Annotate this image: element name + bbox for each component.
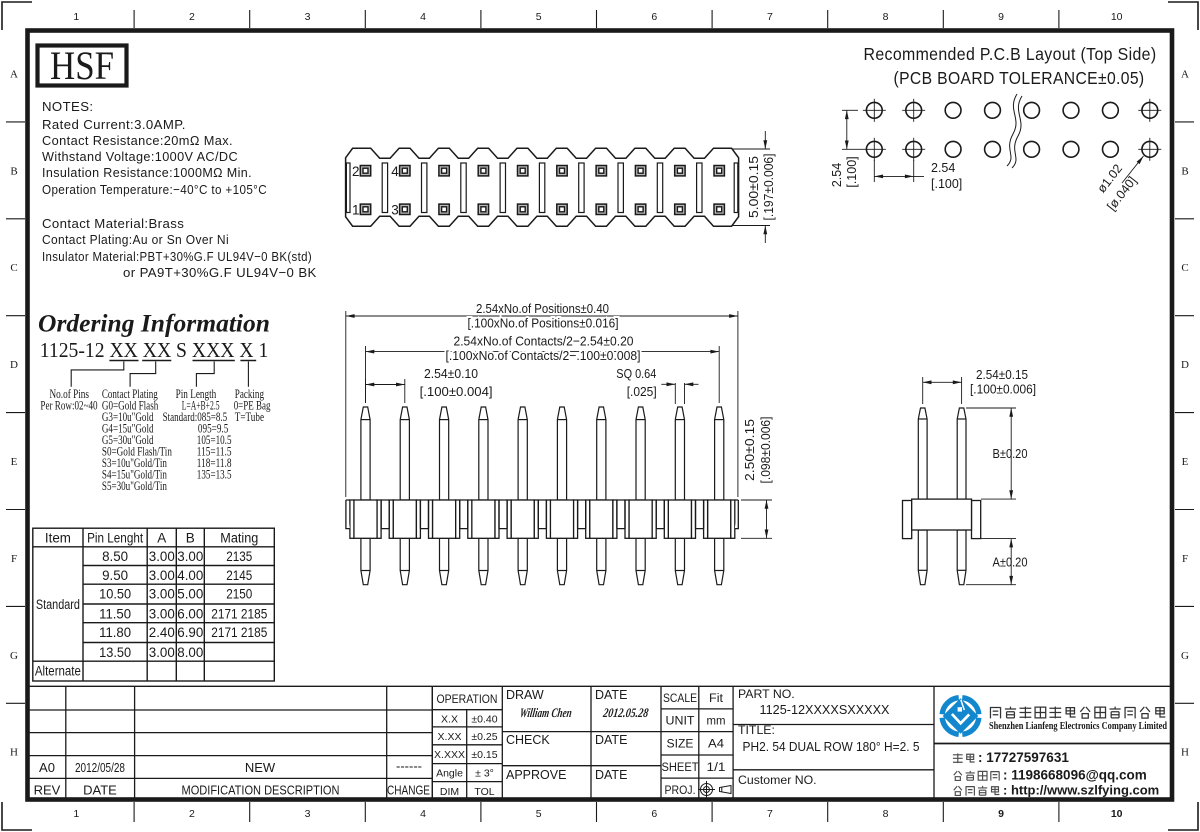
svg-text:A: A	[10, 68, 18, 80]
svg-text:X.XX: X.XX	[438, 731, 462, 743]
svg-text:2145: 2145	[226, 568, 252, 584]
svg-text:E: E	[11, 456, 18, 468]
svg-text:8: 8	[883, 11, 889, 23]
svg-text:PH2. 54 DUAL ROW 180° H=2.: PH2. 54 DUAL ROW 180° H=2. 5	[743, 739, 920, 754]
svg-text:7: 7	[767, 11, 773, 23]
svg-text:X.X: X.X	[441, 713, 458, 725]
svg-text:S5=30u"Gold/Tin: S5=30u"Gold/Tin	[102, 479, 167, 493]
svg-text:or PA9T+30%G.F UL94V−0 BK: or PA9T+30%G.F UL94V−0 BK	[123, 265, 317, 280]
svg-text:------: ------	[396, 759, 422, 774]
svg-text:3: 3	[391, 203, 399, 218]
svg-text:3.00: 3.00	[149, 587, 175, 603]
svg-text:11.50: 11.50	[99, 606, 131, 622]
svg-text:X.XXX: X.XXX	[434, 749, 465, 761]
svg-text:HSF: HSF	[50, 43, 114, 88]
svg-text:2: 2	[352, 164, 360, 179]
svg-text:(PCB BOARD TOLERANCE±0.05): (PCB BOARD TOLERANCE±0.05)	[894, 68, 1145, 88]
svg-text:2171 2185: 2171 2185	[211, 606, 267, 622]
svg-text:2.54: 2.54	[830, 163, 844, 187]
svg-text:2.54±0.15: 2.54±0.15	[976, 367, 1028, 382]
svg-text:2.54xNo.of Contacts/2−2.54±0.2: 2.54xNo.of Contacts/2−2.54±0.20	[454, 334, 634, 349]
svg-text:DIM: DIM	[440, 786, 459, 798]
svg-text:APPROVE: APPROVE	[506, 768, 566, 782]
svg-text:2.54: 2.54	[931, 161, 955, 175]
svg-text:2.40: 2.40	[149, 625, 175, 641]
svg-text:[.025]: [.025]	[627, 384, 657, 399]
svg-text:DRAW: DRAW	[506, 688, 544, 702]
svg-text:G: G	[10, 650, 18, 662]
svg-text:[.100±0.006]: [.100±0.006]	[970, 382, 1036, 397]
svg-text:: http://www.szlfying.com: : http://www.szlfying.com	[1003, 783, 1159, 798]
svg-text:[.100xNo.of Positions±0.016]: [.100xNo.of Positions±0.016]	[468, 316, 619, 331]
svg-text:5.00±0.15: 5.00±0.15	[747, 156, 761, 218]
svg-text:Contact Plating:Au or Sn Over: Contact Plating:Au or Sn Over Ni	[42, 232, 229, 247]
svg-text:2012.05.28: 2012.05.28	[602, 705, 650, 720]
svg-text:[.197±0.006]: [.197±0.006]	[762, 154, 776, 221]
svg-text:Recommended P.C.B Layout (Top: Recommended P.C.B Layout (Top Side)	[864, 44, 1157, 64]
svg-text:A4: A4	[708, 737, 724, 751]
svg-text:2.50±0.15: 2.50±0.15	[742, 419, 757, 481]
svg-text:9: 9	[998, 11, 1004, 23]
svg-text:OPERATION: OPERATION	[437, 692, 498, 706]
svg-text:H: H	[10, 747, 18, 759]
svg-text:135=13.5: 135=13.5	[197, 468, 232, 482]
svg-text:E: E	[1182, 456, 1189, 468]
svg-text:[.100±0.004]: [.100±0.004]	[420, 384, 493, 399]
svg-text:7: 7	[767, 808, 773, 820]
svg-text:Mating: Mating	[220, 530, 258, 546]
svg-text:Ordering Information: Ordering Information	[38, 309, 270, 338]
svg-text:10.50: 10.50	[99, 587, 131, 603]
svg-text:Rated Current:3.0AMP.: Rated Current:3.0AMP.	[42, 117, 186, 132]
svg-text:Fit: Fit	[709, 691, 724, 705]
svg-text:5.00: 5.00	[177, 587, 203, 603]
svg-text:4.00: 4.00	[177, 568, 203, 584]
svg-text:4: 4	[420, 808, 426, 820]
svg-text:Contact Material:Brass: Contact Material:Brass	[42, 216, 184, 231]
svg-text:DATE: DATE	[595, 768, 627, 782]
svg-text:Insulation Resistance:1000MΩ M: Insulation Resistance:1000MΩ Min.	[42, 165, 252, 180]
svg-text:NOTES:: NOTES:	[42, 99, 94, 114]
svg-text:1: 1	[73, 808, 79, 820]
svg-text:± 3°: ± 3°	[475, 768, 494, 780]
svg-text:6: 6	[651, 11, 657, 23]
svg-text:8.50: 8.50	[102, 549, 128, 565]
svg-text:NEW: NEW	[245, 760, 276, 775]
svg-text:3: 3	[305, 11, 311, 23]
svg-text:2012/05/28: 2012/05/28	[75, 760, 125, 775]
svg-text:8: 8	[883, 808, 889, 820]
svg-text:3: 3	[305, 808, 311, 820]
svg-text:13.50: 13.50	[99, 645, 131, 661]
svg-text:4: 4	[391, 164, 399, 179]
svg-text:6.90: 6.90	[177, 625, 203, 641]
svg-text:B: B	[186, 530, 195, 546]
svg-text:Pin Lenght: Pin Lenght	[87, 530, 143, 546]
svg-text:±0.15: ±0.15	[471, 749, 497, 761]
svg-text:SIZE: SIZE	[667, 737, 694, 751]
svg-text:Customer NO.: Customer NO.	[738, 773, 817, 787]
svg-text:Contact Resistance:20mΩ Max.: Contact Resistance:20mΩ Max.	[42, 133, 233, 148]
svg-text:9.50: 9.50	[102, 568, 128, 584]
svg-text:C: C	[1181, 262, 1188, 274]
svg-text:F: F	[1182, 553, 1188, 565]
svg-text:1: 1	[352, 203, 360, 218]
svg-text:CHECK: CHECK	[506, 733, 550, 747]
svg-text:[.098±0.006]: [.098±0.006]	[758, 417, 773, 484]
svg-text:2171 2185: 2171 2185	[211, 625, 267, 641]
svg-text:G: G	[1181, 650, 1189, 662]
svg-text:±0.25: ±0.25	[471, 731, 497, 743]
svg-text:Angle: Angle	[436, 768, 463, 780]
svg-text:William Chen: William Chen	[519, 705, 573, 720]
svg-text:10: 10	[1111, 808, 1123, 820]
svg-text:3.00: 3.00	[149, 645, 175, 661]
svg-text:Standard: Standard	[36, 597, 80, 613]
svg-text:SCALE: SCALE	[663, 691, 697, 705]
svg-text:1/1: 1/1	[707, 760, 726, 774]
svg-text:3.00: 3.00	[149, 606, 175, 622]
svg-text:DATE: DATE	[595, 688, 627, 702]
svg-text:1: 1	[73, 11, 79, 23]
svg-text:4: 4	[420, 11, 426, 23]
svg-text:2135: 2135	[226, 549, 252, 565]
svg-text:C: C	[10, 262, 17, 274]
svg-text:MODIFICATION DESCRIPTION: MODIFICATION DESCRIPTION	[182, 782, 340, 797]
svg-text:Item: Item	[45, 530, 71, 546]
svg-text:T=Tube: T=Tube	[235, 410, 265, 424]
svg-text:[.100]: [.100]	[845, 156, 859, 187]
svg-text:mm: mm	[707, 714, 726, 728]
svg-text:A: A	[1181, 68, 1189, 80]
svg-text:Shenzhen Lianfeng Electronics: Shenzhen Lianfeng Electronics Company Li…	[989, 721, 1167, 732]
svg-text:F: F	[11, 553, 17, 565]
svg-text:9: 9	[998, 808, 1004, 820]
svg-text:1125-12 XX XX S XXX X 1: 1125-12 XX XX S XXX X 1	[40, 338, 268, 362]
svg-text:11.80: 11.80	[99, 625, 131, 641]
svg-text:REV: REV	[34, 782, 61, 797]
svg-text:B: B	[1181, 165, 1188, 177]
svg-text:2150: 2150	[226, 587, 252, 603]
svg-text:10: 10	[1111, 11, 1123, 23]
svg-text:3.00: 3.00	[149, 549, 175, 565]
svg-text:: 1198668096@qq.com: : 1198668096@qq.com	[1003, 768, 1147, 783]
svg-text:SQ 0.64: SQ 0.64	[616, 366, 656, 381]
svg-text:Insulator Material:PBT+30%G.F: Insulator Material:PBT+30%G.F UL94V−0 BK…	[42, 249, 312, 264]
svg-text:: 17727597631: : 17727597631	[978, 750, 1069, 765]
svg-text:PART NO.: PART NO.	[738, 687, 795, 701]
svg-text:B±0.20: B±0.20	[993, 446, 1028, 461]
svg-text:[.100]: [.100]	[931, 177, 962, 191]
svg-text:2: 2	[189, 808, 195, 820]
svg-text:1125-12XXXXSXXXXX: 1125-12XXXXSXXXXX	[760, 702, 890, 717]
svg-text:A0: A0	[39, 760, 55, 775]
svg-text:TOL: TOL	[474, 786, 494, 798]
svg-text:6: 6	[651, 808, 657, 820]
svg-text:A: A	[157, 530, 167, 546]
svg-text:DATE: DATE	[595, 733, 627, 747]
svg-text:Per Row:02~40: Per Row:02~40	[40, 398, 97, 412]
svg-text:DATE: DATE	[83, 782, 117, 797]
svg-text:3.00: 3.00	[177, 549, 203, 565]
svg-text:Alternate: Alternate	[35, 664, 81, 680]
svg-text:5: 5	[536, 808, 542, 820]
svg-text:D: D	[1181, 359, 1189, 371]
svg-text:2.54xNo.of Positions±0.40: 2.54xNo.of Positions±0.40	[476, 301, 609, 316]
svg-text:CHANGE: CHANGE	[387, 782, 430, 797]
svg-text:[.100xNo.of Contacts/2−.100±0.: [.100xNo.of Contacts/2−.100±0.008]	[446, 348, 641, 363]
svg-text:Operation Temperature:−40°C to: Operation Temperature:−40°C to +105°C	[42, 182, 267, 197]
svg-text:3.00: 3.00	[149, 568, 175, 584]
svg-text:SHEET: SHEET	[662, 760, 699, 774]
svg-text:6.00: 6.00	[177, 606, 203, 622]
svg-text:TITLE:: TITLE:	[738, 723, 775, 737]
svg-text:UNIT: UNIT	[666, 714, 695, 728]
svg-text:5: 5	[536, 11, 542, 23]
svg-text:±0.40: ±0.40	[471, 713, 497, 725]
svg-text:D: D	[10, 359, 18, 371]
svg-text:8.00: 8.00	[177, 645, 203, 661]
svg-text:B: B	[10, 165, 17, 177]
svg-text:2.54±0.10: 2.54±0.10	[424, 366, 478, 381]
svg-text:H: H	[1181, 747, 1189, 759]
svg-text:A±0.20: A±0.20	[993, 555, 1028, 570]
svg-text:Withstand Voltage:1000V AC/DC: Withstand Voltage:1000V AC/DC	[42, 149, 238, 164]
svg-text:2: 2	[189, 11, 195, 23]
svg-text:PROJ.: PROJ.	[665, 783, 696, 797]
